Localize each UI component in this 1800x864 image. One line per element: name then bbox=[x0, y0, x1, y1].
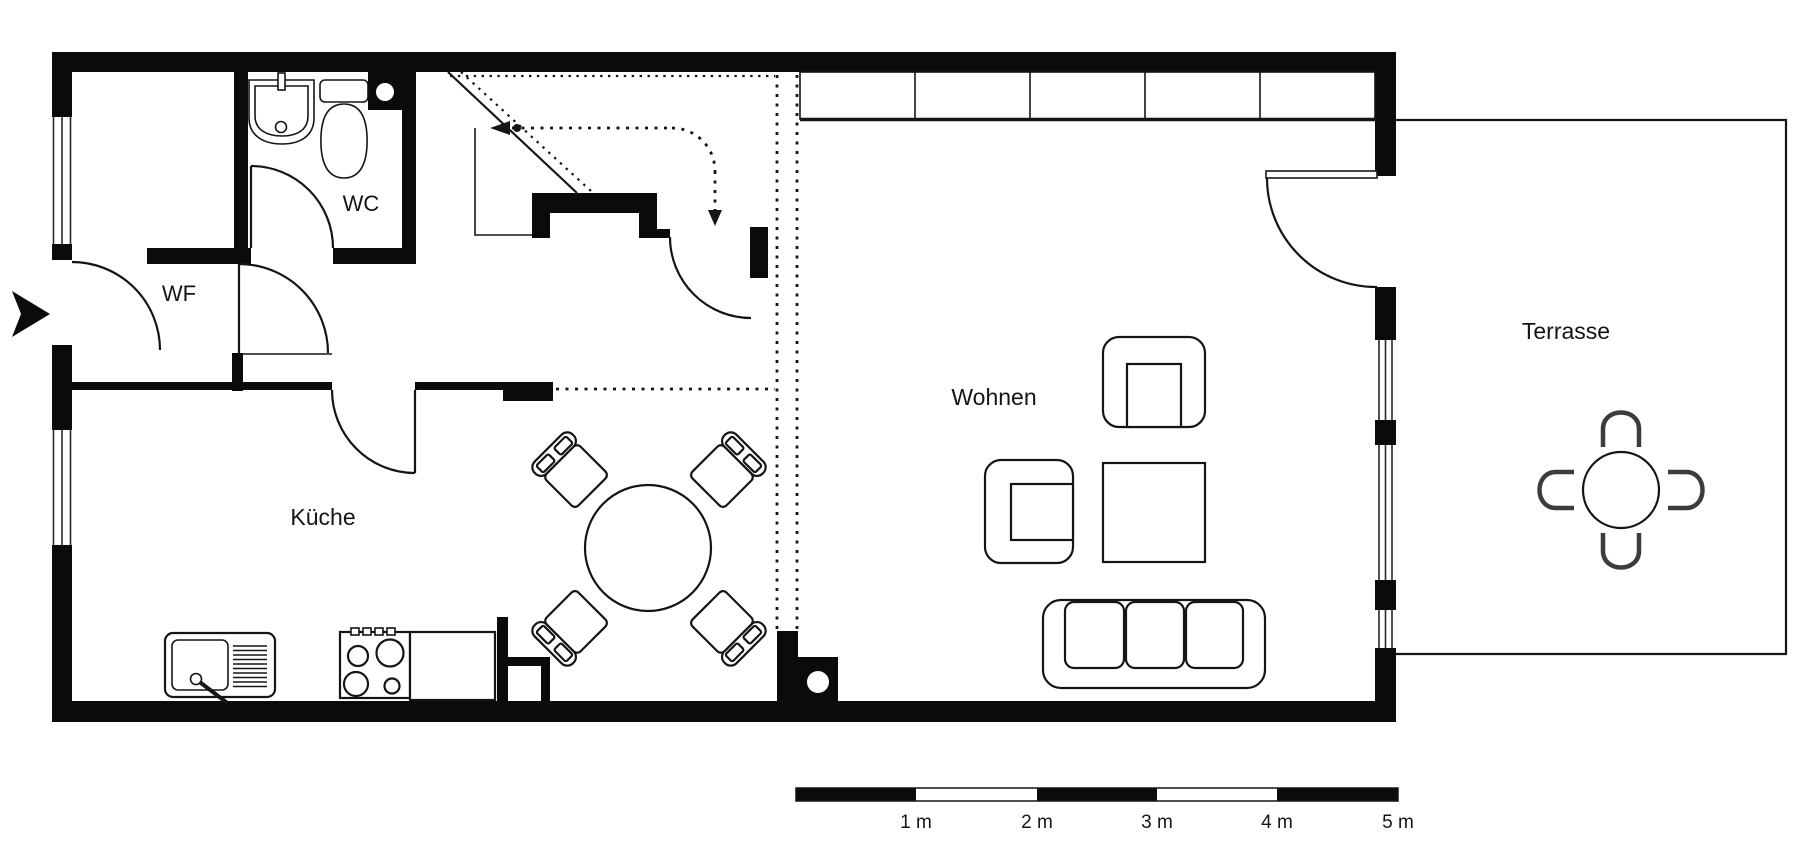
window-icon bbox=[50, 117, 75, 244]
wall-right-mullion bbox=[1375, 420, 1396, 445]
entry-arrow-icon bbox=[12, 291, 50, 337]
wall-wc-left bbox=[234, 72, 248, 264]
arrow-down-icon bbox=[708, 210, 722, 226]
scale-label-3m: 3 m bbox=[1141, 812, 1173, 833]
wall-stub bbox=[232, 353, 243, 391]
living-furniture bbox=[800, 72, 1375, 688]
stair-hall-door-arc bbox=[670, 237, 751, 318]
stair-halfwall bbox=[532, 193, 657, 213]
scale-label-4m: 4 m bbox=[1261, 812, 1293, 833]
floor-plan-page: WF WC Küche Wohnen Terrasse 1 m 2 m 3 m … bbox=[0, 0, 1800, 864]
walk-line-dot bbox=[513, 124, 521, 132]
stair-break-line bbox=[448, 72, 577, 193]
dining-chair-icon bbox=[529, 587, 611, 669]
dining-chair-icon bbox=[529, 429, 611, 511]
washbasin-icon bbox=[249, 73, 314, 144]
stove-icon bbox=[340, 628, 410, 698]
wall-right bbox=[1375, 287, 1396, 340]
toilet-icon bbox=[320, 80, 368, 178]
pillar-pipe-icon bbox=[807, 671, 829, 693]
arrow-left-icon bbox=[490, 121, 510, 135]
terrace-chair-icon bbox=[1603, 413, 1639, 448]
wall-right bbox=[1375, 52, 1396, 176]
kitchen-sink-icon bbox=[165, 633, 275, 702]
kitchen-fixtures bbox=[165, 628, 495, 702]
wall-left bbox=[52, 244, 72, 260]
stair-halfwall bbox=[532, 193, 550, 238]
wall-bottom bbox=[52, 701, 1396, 722]
stair-break-dotted bbox=[461, 72, 591, 191]
label-kitchen: Küche bbox=[290, 504, 355, 530]
duct-pipe-icon bbox=[376, 83, 394, 101]
hallway-door bbox=[239, 264, 328, 353]
terrace-chair-icon bbox=[1540, 472, 1575, 508]
dining-chair-icon bbox=[687, 587, 769, 669]
scale-label-2m: 2 m bbox=[1021, 812, 1053, 833]
wall-wc-bottom bbox=[147, 248, 251, 264]
label-wc: WC bbox=[343, 191, 380, 216]
dining-set bbox=[529, 429, 769, 669]
wall-end-block bbox=[503, 382, 553, 401]
wall-left bbox=[52, 545, 72, 702]
stair-halfwall bbox=[639, 193, 657, 238]
wc-door bbox=[251, 166, 333, 248]
pillar bbox=[777, 631, 798, 722]
label-living: Wohnen bbox=[951, 384, 1036, 410]
window-icon bbox=[1379, 340, 1392, 420]
scale-label-5m: 5 m bbox=[1382, 812, 1414, 833]
counter bbox=[410, 632, 495, 700]
scale-bar: 1 m 2 m 3 m 4 m 5 m bbox=[796, 788, 1414, 833]
kitchen-door bbox=[332, 390, 415, 473]
terrace-outline bbox=[1396, 120, 1786, 654]
floor-plan: WF WC Küche Wohnen Terrasse 1 m 2 m 3 m … bbox=[0, 0, 1800, 864]
wall-kitchen-top bbox=[415, 382, 503, 390]
wall-wc-right bbox=[402, 72, 416, 264]
label-hallway: WF bbox=[162, 281, 196, 306]
wall-partition bbox=[541, 666, 550, 722]
scale-labels: 1 m 2 m 3 m 4 m 5 m bbox=[900, 812, 1414, 833]
wall-right bbox=[1375, 648, 1396, 722]
wall-left bbox=[52, 52, 72, 117]
wardrobe-dividers bbox=[915, 72, 1260, 119]
armchair-icon bbox=[985, 460, 1073, 563]
room-labels: WF WC Küche Wohnen Terrasse bbox=[162, 191, 1610, 530]
armchair-icon bbox=[1103, 337, 1205, 427]
wc-fixtures bbox=[249, 73, 368, 178]
scale-label-1m: 1 m bbox=[900, 812, 932, 833]
sofa-icon bbox=[1043, 600, 1265, 688]
terrace-area bbox=[1396, 120, 1786, 654]
wall-partition bbox=[508, 657, 550, 666]
wall-stair-bottom bbox=[657, 229, 670, 238]
terrace-chair-icon bbox=[1603, 533, 1639, 568]
wall-top bbox=[52, 52, 1396, 72]
wardrobe bbox=[800, 72, 1375, 119]
wall-kitchen-top bbox=[72, 382, 332, 390]
wall-right-mullion bbox=[1375, 580, 1396, 610]
terrace-door bbox=[1266, 171, 1377, 287]
terrace-table-icon bbox=[1583, 452, 1659, 528]
wall-left bbox=[52, 345, 72, 430]
coffee-table-icon bbox=[1103, 463, 1205, 562]
entry-door-arc bbox=[72, 262, 160, 350]
dining-chair-icon bbox=[687, 429, 769, 511]
windows-left bbox=[50, 117, 75, 545]
wall-wc-bottom bbox=[333, 248, 416, 264]
label-terrace: Terrasse bbox=[1522, 318, 1610, 344]
wall-partition bbox=[497, 617, 508, 722]
terrace-chair-icon bbox=[1668, 472, 1703, 508]
dining-table-icon bbox=[585, 485, 711, 611]
window-icon bbox=[1379, 610, 1392, 648]
window-icon bbox=[50, 430, 75, 545]
window-icon bbox=[1379, 445, 1392, 580]
wall-jamb bbox=[750, 227, 768, 278]
